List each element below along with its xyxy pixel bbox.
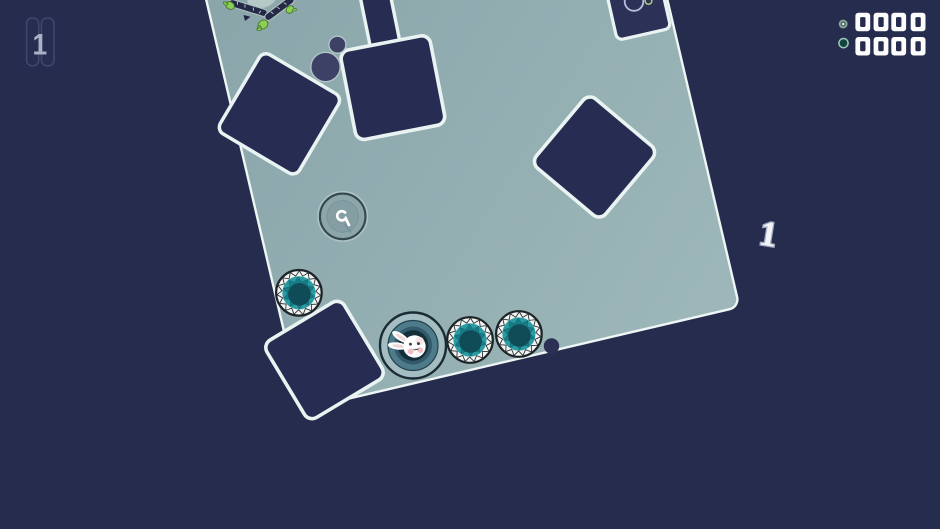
svg-text:1: 1: [32, 27, 47, 61]
